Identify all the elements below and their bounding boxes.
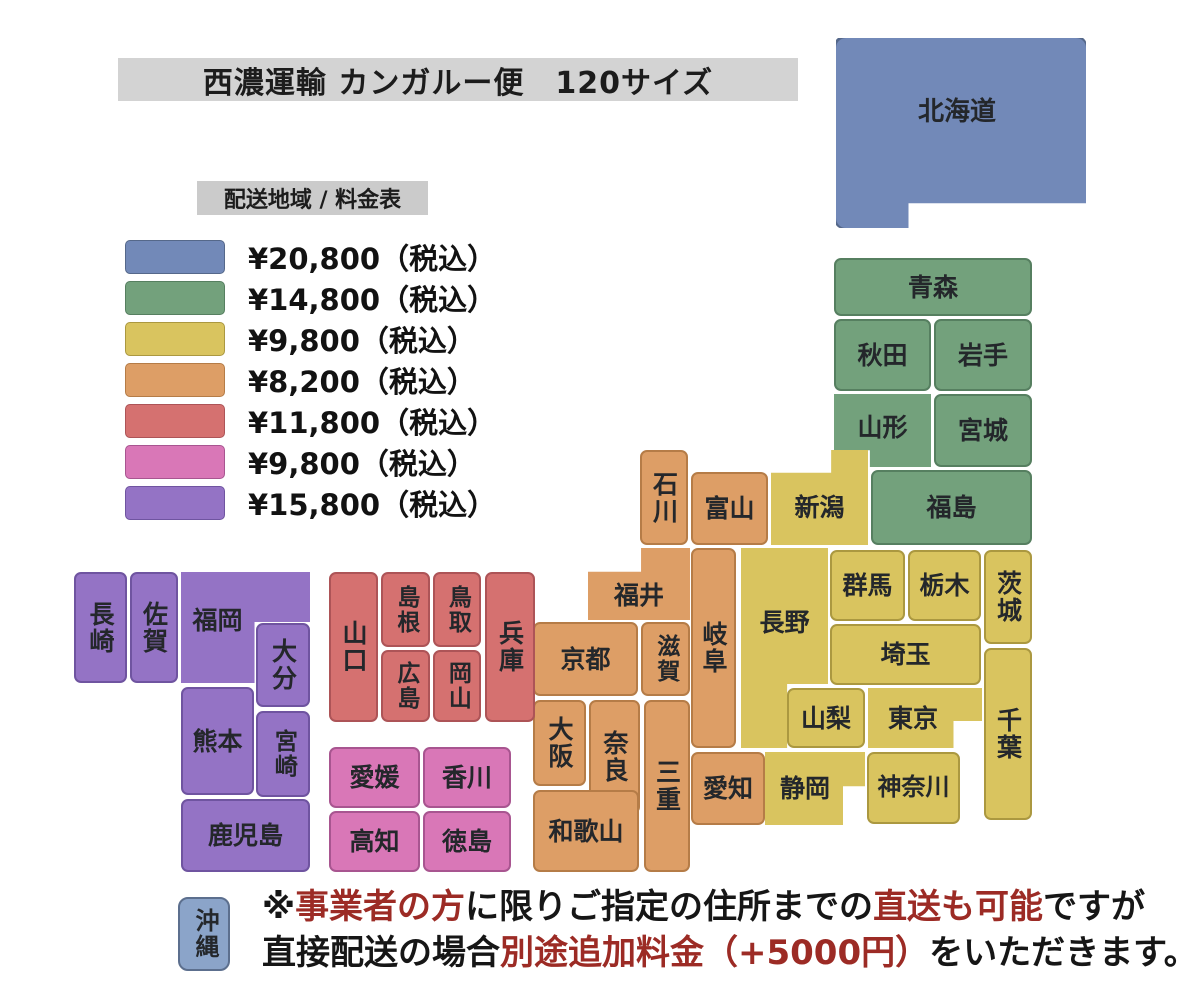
prefecture-tottori: 鳥取 [433,572,481,647]
gunma-label: 群馬 [842,572,892,599]
nagano-label: 長野 [759,609,809,636]
prefecture-okinawa: 沖縄 [178,897,230,971]
prefecture-fukushima: 福島 [871,470,1032,545]
prefecture-tokushima: 徳島 [423,811,511,872]
prefecture-shiga: 滋賀 [641,622,690,696]
miyagi-label: 宮城 [958,417,1008,444]
prefecture-akita: 秋田 [834,319,931,391]
okinawa-label: 沖縄 [191,908,217,960]
hokkaido-label: 北海道 [918,98,996,126]
yamaguchi-label: 山口 [340,620,367,674]
prefecture-aichi: 愛知 [691,752,765,825]
prefecture-tokyo: 東京 [868,688,982,748]
footnote-line-1: ※事業者の方に限りご指定の住所までの直送も可能ですが [262,884,1197,930]
legend-chip-red [125,404,225,438]
hyogo-label: 兵庫 [497,620,524,674]
legend-price-blue: ¥20,800（税込） [248,240,496,274]
footnote: ※事業者の方に限りご指定の住所までの直送も可能ですが 直接配送の場合別途追加料金… [262,884,1197,976]
prefecture-gunma: 群馬 [830,550,905,621]
shimane-label: 島根 [393,585,418,635]
kanagawa-label: 神奈川 [878,775,950,801]
page-title: 西濃運輸 カンガルー便 120サイズ [118,58,798,101]
prefecture-aomori: 青森 [834,258,1032,316]
wakayama-label: 和歌山 [548,818,623,845]
saitama-label: 埼玉 [880,641,930,668]
prefecture-kumamoto: 熊本 [181,687,254,795]
legend-chip-yellow [125,322,225,356]
tokyo-label: 東京 [888,705,938,732]
fukushima-label: 福島 [926,494,976,521]
legend-chip-green [125,281,225,315]
prefecture-hiroshima: 広島 [381,650,430,722]
prefecture-kyoto: 京都 [533,622,638,696]
footnote-seg: をいただきます。 [929,933,1198,973]
tottori-label: 鳥取 [445,585,470,635]
aichi-label: 愛知 [703,775,753,802]
prefecture-yamaguchi: 山口 [329,572,378,722]
ehime-label: 愛媛 [349,764,399,791]
miyazaki-label: 宮崎 [271,729,296,779]
legend-price-green: ¥14,800（税込） [248,281,496,315]
footnote-seg: に限りご指定の住所までの [465,887,873,927]
prefecture-iwate: 岩手 [934,319,1032,391]
prefecture-hokkaido: 北海道 [836,38,1086,228]
prefecture-yamanashi: 山梨 [787,688,865,748]
footnote-seg: 直接配送の場合 [262,933,500,973]
kochi-label: 高知 [349,828,399,855]
kagawa-label: 香川 [442,764,492,791]
legend-chip-purple [125,486,225,520]
prefecture-niigata: 新潟 [771,450,868,545]
mie-label: 三重 [654,759,681,813]
aomori-label: 青森 [908,274,958,301]
prefecture-chiba: 千葉 [984,648,1032,820]
prefecture-saitama: 埼玉 [830,624,981,685]
prefecture-wakayama: 和歌山 [533,790,639,872]
prefecture-miyagi: 宮城 [934,394,1032,467]
yamagata-label: 山形 [857,414,907,441]
footnote-line-2: 直接配送の場合別途追加料金（+5000円）をいただきます。 [262,930,1197,976]
prefecture-mie: 三重 [644,700,690,872]
prefecture-hyogo: 兵庫 [485,572,535,722]
legend-price-yellow: ¥9,800（税込） [248,322,476,356]
prefecture-osaka: 大阪 [533,700,586,786]
prefecture-shimane: 島根 [381,572,430,647]
shizuoka-label: 静岡 [780,775,830,802]
footnote-seg: ですが [1043,887,1145,927]
yamanashi-label: 山梨 [801,705,851,732]
prefecture-kagawa: 香川 [423,747,511,808]
prefecture-kagoshima: 鹿児島 [181,799,310,872]
footnote-seg: ※ [262,887,295,927]
shiga-label: 滋賀 [653,634,678,684]
kagoshima-label: 鹿児島 [208,822,283,849]
legend-price-purple: ¥15,800（税込） [248,486,496,520]
prefecture-saga: 佐賀 [130,572,178,683]
ishikawa-label: 石川 [651,471,678,525]
legend-chip-orange [125,363,225,397]
nara-label: 奈良 [601,730,628,784]
prefecture-ehime: 愛媛 [329,747,420,808]
prefecture-kochi: 高知 [329,811,420,872]
osaka-label: 大阪 [546,716,573,770]
prefecture-toyama: 富山 [691,472,768,545]
prefecture-shizuoka: 静岡 [765,752,865,825]
saga-label: 佐賀 [141,601,168,655]
prefecture-ishikawa: 石川 [640,450,688,545]
prefecture-nagasaki: 長崎 [74,572,127,683]
niigata-label: 新潟 [794,494,844,521]
fukui-label: 福井 [614,582,664,609]
prefecture-oita: 大分 [256,623,310,707]
legend-header: 配送地域 / 料金表 [197,181,428,215]
legend-price-pink: ¥9,800（税込） [248,445,476,479]
footnote-seg-highlight: 直送も可能 [873,887,1043,927]
prefecture-kanagawa: 神奈川 [867,752,960,824]
hiroshima-label: 広島 [393,661,418,711]
footnote-seg-highlight: 事業者の方 [295,887,465,927]
prefecture-gifu: 岐阜 [691,548,736,748]
gifu-label: 岐阜 [700,621,727,675]
prefecture-miyazaki: 宮崎 [256,711,310,797]
prefecture-ibaraki: 茨城 [984,550,1032,644]
legend-chip-blue [125,240,225,274]
legend-price-red: ¥11,800（税込） [248,404,496,438]
tochigi-label: 栃木 [919,572,969,599]
chiba-label: 千葉 [995,707,1022,761]
shipping-fee-flyer: 西濃運輸 カンガルー便 120サイズ 配送地域 / 料金表 ¥20,800（税込… [0,0,1200,1003]
iwate-label: 岩手 [958,342,1008,369]
kumamoto-label: 熊本 [192,728,242,755]
nagasaki-label: 長崎 [87,601,114,655]
footnote-seg-highlight: 別途追加料金（+5000円） [500,933,929,973]
prefecture-tochigi: 栃木 [908,550,981,621]
okayama-label: 岡山 [445,661,470,711]
oita-label: 大分 [270,638,297,692]
kyoto-label: 京都 [560,646,610,673]
tokushima-label: 徳島 [442,828,492,855]
legend-chip-pink [125,445,225,479]
prefecture-okayama: 岡山 [433,650,481,722]
akita-label: 秋田 [857,342,907,369]
toyama-label: 富山 [704,495,754,522]
fukuoka-label: 福岡 [192,607,242,634]
ibaraki-label: 茨城 [995,570,1022,624]
prefecture-fukui: 福井 [588,548,690,620]
legend-price-orange: ¥8,200（税込） [248,363,476,397]
